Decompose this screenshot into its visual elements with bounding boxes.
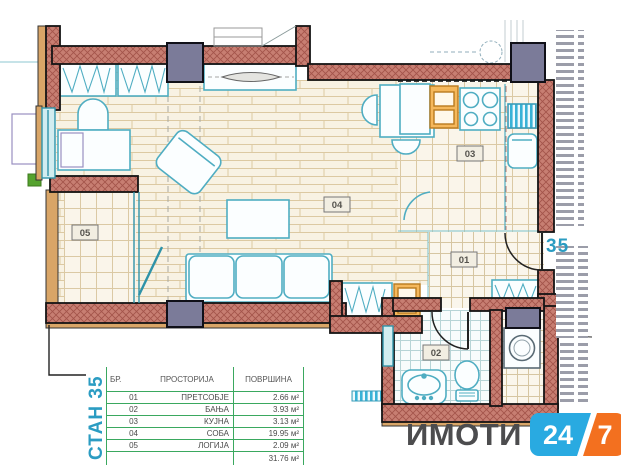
column — [511, 43, 545, 82]
room-tag-bath: 02 — [423, 345, 449, 360]
apartment-label: СТАН 35 — [86, 363, 106, 460]
imoti247-logo: ИМОТИ 24 7 — [406, 412, 621, 457]
room-area: 3.13 м² — [233, 416, 303, 427]
room-area: 19.95 м² — [233, 428, 303, 439]
room-tag-hall: 01 — [451, 252, 477, 267]
room-no: 04 — [107, 429, 141, 438]
table-row: 01 ПРЕТСОБЈЕ 2.66 м² — [107, 392, 303, 404]
toilet — [455, 361, 479, 401]
table-row: 02 БАЊА 3.93 м² — [107, 404, 303, 416]
sofa — [186, 254, 332, 302]
boiler-cabinet — [430, 86, 458, 128]
room-no: 02 — [107, 405, 141, 414]
table-header-row: БР. ПРОСТОРИЈА ПОВРШИНА — [107, 367, 303, 392]
header-room: ПРОСТОРИЈА — [141, 375, 233, 384]
column — [506, 308, 540, 328]
room-area: 2.66 м² — [233, 392, 303, 403]
wardrobe — [118, 62, 168, 96]
washing-machine — [504, 328, 540, 368]
svg-text:04: 04 — [332, 200, 343, 211]
logo-badge: 24 7 — [529, 412, 621, 457]
svg-text:02: 02 — [431, 348, 442, 359]
floorplan-page: 01 02 03 04 05 35 СТАН 35 БР. ПРОСТОРИЈА… — [0, 0, 621, 465]
header-no: БР. — [107, 375, 141, 384]
room-tag-loggia: 05 — [72, 225, 98, 240]
terrace-outline — [49, 325, 86, 375]
room-name: ЛОГИЈА — [141, 441, 233, 450]
radiator — [352, 391, 386, 401]
wardrobe — [60, 62, 116, 96]
room-tag-kitchen: 03 — [457, 146, 483, 161]
room-name: СОБА — [141, 429, 233, 438]
bathroom-sink — [402, 370, 446, 404]
room-no: 01 — [107, 393, 141, 402]
logo-brand-text: ИМОТИ — [406, 412, 522, 457]
kitchen-cabinet — [400, 84, 430, 134]
unit-number: 35 — [546, 236, 569, 257]
room-tag-living: 04 — [324, 197, 350, 212]
rooms-table: БР. ПРОСТОРИЈА ПОВРШИНА 01 ПРЕТСОБЈЕ 2.6… — [106, 367, 304, 465]
room-no: 03 — [107, 417, 141, 426]
table-total-row: 31.76 м² — [107, 452, 303, 465]
balcony-slab-outline — [12, 114, 38, 164]
svg-text:05: 05 — [80, 228, 91, 239]
loggia-outer-wall — [46, 190, 58, 308]
fridge — [508, 134, 537, 168]
top-window — [214, 26, 296, 46]
table-row: 03 КУЈНА 3.13 м² — [107, 416, 303, 428]
room-area: 3.93 м² — [233, 404, 303, 415]
room-area: 2.09 м² — [233, 440, 303, 451]
logo-7: 7 — [597, 420, 612, 450]
tv-shelf-unit — [204, 64, 296, 90]
kitchen-sink-drainer — [508, 104, 536, 128]
header-area: ПОВРШИНА — [233, 367, 303, 391]
stove — [460, 88, 500, 130]
column — [167, 43, 203, 82]
room-name: КУЈНА — [141, 417, 233, 426]
room-no: 05 — [107, 441, 141, 450]
window — [383, 326, 393, 366]
neighbor-hatching — [556, 30, 588, 404]
table-row: 05 ЛОГИЈА 2.09 м² — [107, 440, 303, 452]
loggia-tile-floor — [64, 190, 136, 305]
coffee-table — [227, 200, 289, 238]
room-name: ПРЕТСОБЈЕ — [141, 393, 233, 402]
total-area: 31.76 м² — [233, 452, 303, 465]
table-row: 04 СОБА 19.95 м² — [107, 428, 303, 440]
svg-text:03: 03 — [465, 149, 476, 160]
room-name: БАЊА — [141, 405, 233, 414]
logo-24: 24 — [543, 420, 573, 450]
svg-text:01: 01 — [459, 255, 470, 266]
column — [167, 301, 203, 327]
